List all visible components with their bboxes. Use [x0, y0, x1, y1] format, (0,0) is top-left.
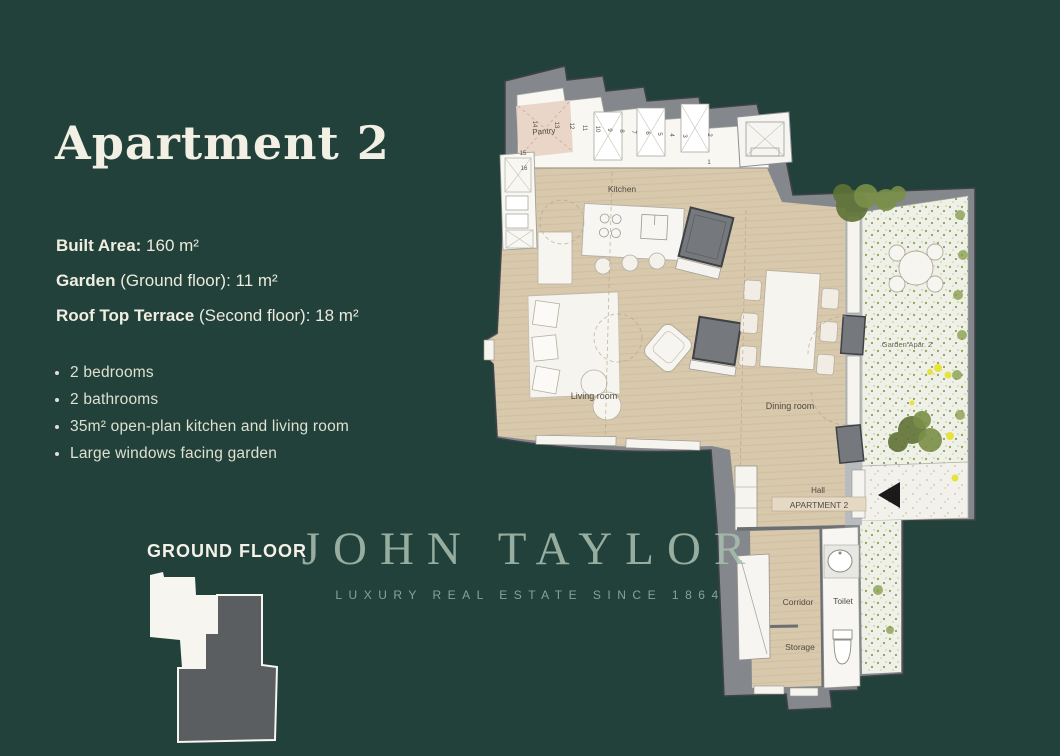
spec-value: (Ground floor): 11 m² [116, 271, 278, 290]
cabinet-number: 13 [553, 122, 559, 129]
spec-roof-terrace: Roof Top Terrace (Second floor): 18 m² [56, 298, 359, 333]
cabinet-number: 11 [581, 125, 587, 132]
spec-garden: Garden (Ground floor): 11 m² [56, 263, 359, 298]
cabinet-number: 12 [568, 123, 574, 130]
feature-item: 35m² open-plan kitchen and living room [70, 418, 349, 436]
spec-value: 160 m² [141, 236, 199, 255]
spec-built-area: Built Area: 160 m² [56, 228, 359, 263]
spec-value: (Second floor): 18 m² [194, 306, 358, 325]
corridor-label: Corridor [783, 597, 814, 607]
living-room-label: Living room [571, 391, 618, 401]
fireplace-unit [689, 317, 743, 377]
kitchen-island [582, 203, 685, 260]
toilet-label: Toilet [833, 596, 853, 606]
kitchen-label: Kitchen [608, 184, 637, 194]
cabinet-number: 14 [531, 121, 537, 128]
feature-item: 2 bathrooms [70, 391, 349, 409]
feature-item: Large windows facing garden [70, 445, 349, 463]
left-cabinet-column [500, 152, 537, 250]
cabinet-number: 10 [594, 126, 600, 133]
page-title: Apartment 2 [55, 116, 390, 170]
dining-room-label: Dining room [766, 401, 815, 411]
cabinet-number: 15 [520, 151, 527, 157]
spec-label: Roof Top Terrace [56, 306, 194, 325]
feature-list: 2 bedrooms 2 bathrooms 35m² open-plan ki… [52, 364, 349, 472]
hall-label: Hall [811, 486, 825, 495]
hall-wardrobe [735, 466, 757, 530]
spec-label: Garden [56, 271, 116, 290]
elevator [737, 112, 792, 167]
staircase [737, 554, 770, 660]
garden-label: Garden Apar. 2 [882, 340, 932, 349]
ground-floor-label: GROUND FLOOR [147, 541, 307, 562]
spec-list: Built Area: 160 m² Garden (Ground floor)… [56, 228, 359, 333]
toilet-room [822, 527, 860, 688]
brochure-page: { "header": { "title": "Apartment 2" }, … [0, 0, 1060, 756]
cabinet-number: 16 [521, 166, 528, 172]
hall-apartment-label: APARTMENT 2 [790, 500, 849, 510]
storage-label: Storage [785, 642, 815, 652]
minimap [150, 572, 277, 742]
spec-label: Built Area: [56, 236, 141, 255]
pantry-label: Pantry [532, 126, 556, 137]
feature-item: 2 bedrooms [70, 364, 349, 382]
